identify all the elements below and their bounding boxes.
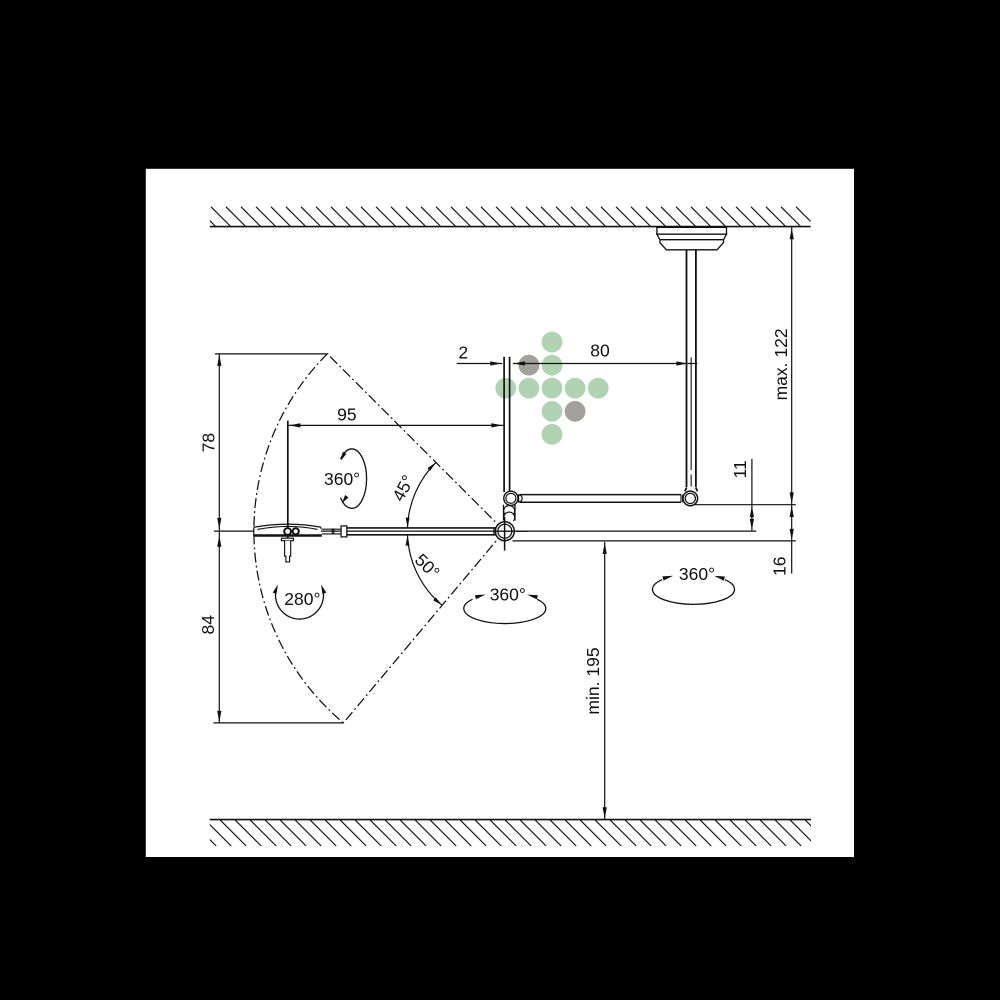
svg-text:11: 11 — [730, 460, 750, 478]
svg-text:360°: 360° — [679, 564, 715, 584]
svg-text:360°: 360° — [324, 469, 360, 489]
svg-text:280°: 280° — [284, 589, 320, 609]
svg-text:84: 84 — [198, 615, 218, 635]
svg-text:min. 195: min. 195 — [583, 647, 603, 714]
svg-text:360°: 360° — [490, 584, 526, 604]
svg-text:16: 16 — [770, 557, 790, 576]
svg-text:95: 95 — [337, 404, 356, 424]
svg-text:max. 122: max. 122 — [771, 328, 791, 400]
svg-text:78: 78 — [199, 433, 219, 452]
svg-text:80: 80 — [590, 341, 610, 361]
svg-text:2: 2 — [458, 342, 468, 362]
